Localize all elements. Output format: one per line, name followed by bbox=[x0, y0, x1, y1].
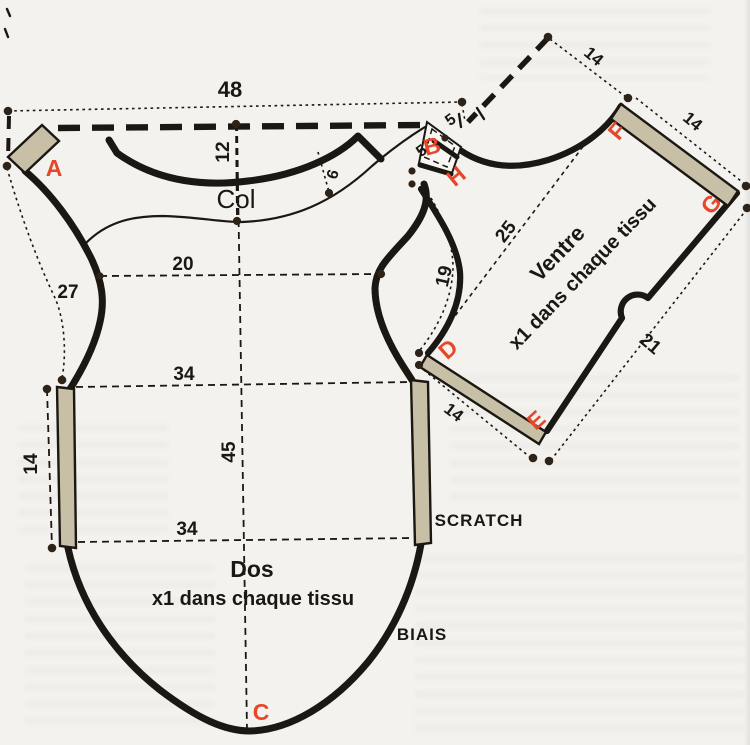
dim-25: 25 bbox=[491, 217, 521, 247]
dim-endpoint-dot bbox=[458, 98, 467, 107]
tick-5 bbox=[459, 114, 461, 127]
dim-endpoint-dot bbox=[545, 457, 554, 466]
dim-34-bottom: 34 bbox=[176, 519, 198, 540]
dim-5-top: 5 bbox=[442, 111, 459, 130]
dim-endpoint-dot bbox=[408, 167, 415, 174]
bounding-right-dash bbox=[462, 104, 465, 121]
dim-endpoint-dot bbox=[743, 204, 750, 213]
ventre-front-scratch-strip bbox=[611, 104, 738, 206]
dim-endpoint-dot bbox=[43, 385, 52, 394]
dim-endpoint-dot bbox=[232, 120, 240, 128]
dim-endpoint-dot bbox=[742, 182, 750, 191]
dim-endpoint-dot bbox=[325, 189, 333, 197]
dim-line-14-left bbox=[47, 389, 52, 548]
dim-line-34-top bbox=[76, 382, 411, 387]
scan-mark bbox=[5, 29, 8, 37]
ventre-neck-edge bbox=[460, 106, 621, 166]
dim-34-top: 34 bbox=[173, 364, 195, 385]
point-c: C bbox=[253, 699, 270, 725]
dim-endpoint-dot bbox=[441, 134, 448, 141]
dim-endpoint-dot bbox=[415, 361, 423, 369]
sewing-pattern-sheet: 48 12 6 20 27 34 14 45 34 5 5 14 14 25 1… bbox=[0, 0, 750, 745]
dim-endpoint-dot bbox=[408, 180, 415, 187]
ventre-back-scratch-strip bbox=[420, 355, 546, 444]
dim-endpoint-dot bbox=[58, 376, 67, 385]
dim-endpoint-dot bbox=[3, 162, 12, 171]
dim-endpoint-dot bbox=[544, 33, 553, 42]
dos-left-scratch-strip bbox=[57, 387, 76, 548]
scan-mark bbox=[7, 9, 10, 16]
piece-dos bbox=[8, 125, 431, 731]
dim-line-48 bbox=[8, 102, 462, 111]
pattern-diagram: 48 12 6 20 27 34 14 45 34 5 5 14 14 25 1… bbox=[0, 0, 750, 745]
tick-5 bbox=[477, 108, 484, 119]
dim-48: 48 bbox=[218, 77, 242, 102]
center-line bbox=[237, 124, 247, 729]
dim-27: 27 bbox=[57, 282, 78, 303]
dim-12: 12 bbox=[213, 141, 234, 162]
dim-endpoint-dot bbox=[48, 544, 57, 553]
dim-endpoint-dot bbox=[4, 107, 13, 116]
dos-right-scratch-strip bbox=[411, 380, 431, 545]
dos-fold-edge bbox=[58, 125, 425, 128]
dim-6: 6 bbox=[324, 168, 343, 182]
dim-endpoint-dot bbox=[96, 272, 103, 279]
dim-line-20 bbox=[100, 274, 381, 276]
dim-endpoint-dot bbox=[233, 217, 241, 225]
dim-endpoint-dot bbox=[415, 349, 423, 357]
ventre-quantity: x1 dans chaque tissu bbox=[505, 193, 661, 354]
biais-label: BIAIS bbox=[397, 625, 447, 644]
dos-quantity: x1 dans chaque tissu bbox=[152, 588, 354, 610]
dim-19: 19 bbox=[432, 264, 457, 289]
scratch-label: SCRATCH bbox=[435, 511, 524, 530]
dos-name: Dos bbox=[230, 556, 273, 582]
dim-14-front: 14 bbox=[679, 108, 706, 135]
dim-endpoint-dot bbox=[377, 270, 385, 278]
ventre-fold-extension bbox=[468, 38, 548, 122]
dim-14-left: 14 bbox=[21, 453, 42, 475]
dos-left-edge bbox=[25, 171, 102, 389]
collar-label: Col bbox=[216, 184, 255, 214]
dim-21: 21 bbox=[635, 329, 665, 359]
dim-endpoint-dot bbox=[529, 454, 538, 463]
bounding-left-dash bbox=[8, 116, 9, 160]
dim-20: 20 bbox=[172, 254, 193, 275]
dim-45: 45 bbox=[219, 441, 240, 463]
dim-line-34-bottom bbox=[78, 538, 415, 542]
dim-endpoint-dot bbox=[624, 94, 633, 103]
point-a: A bbox=[46, 155, 63, 181]
